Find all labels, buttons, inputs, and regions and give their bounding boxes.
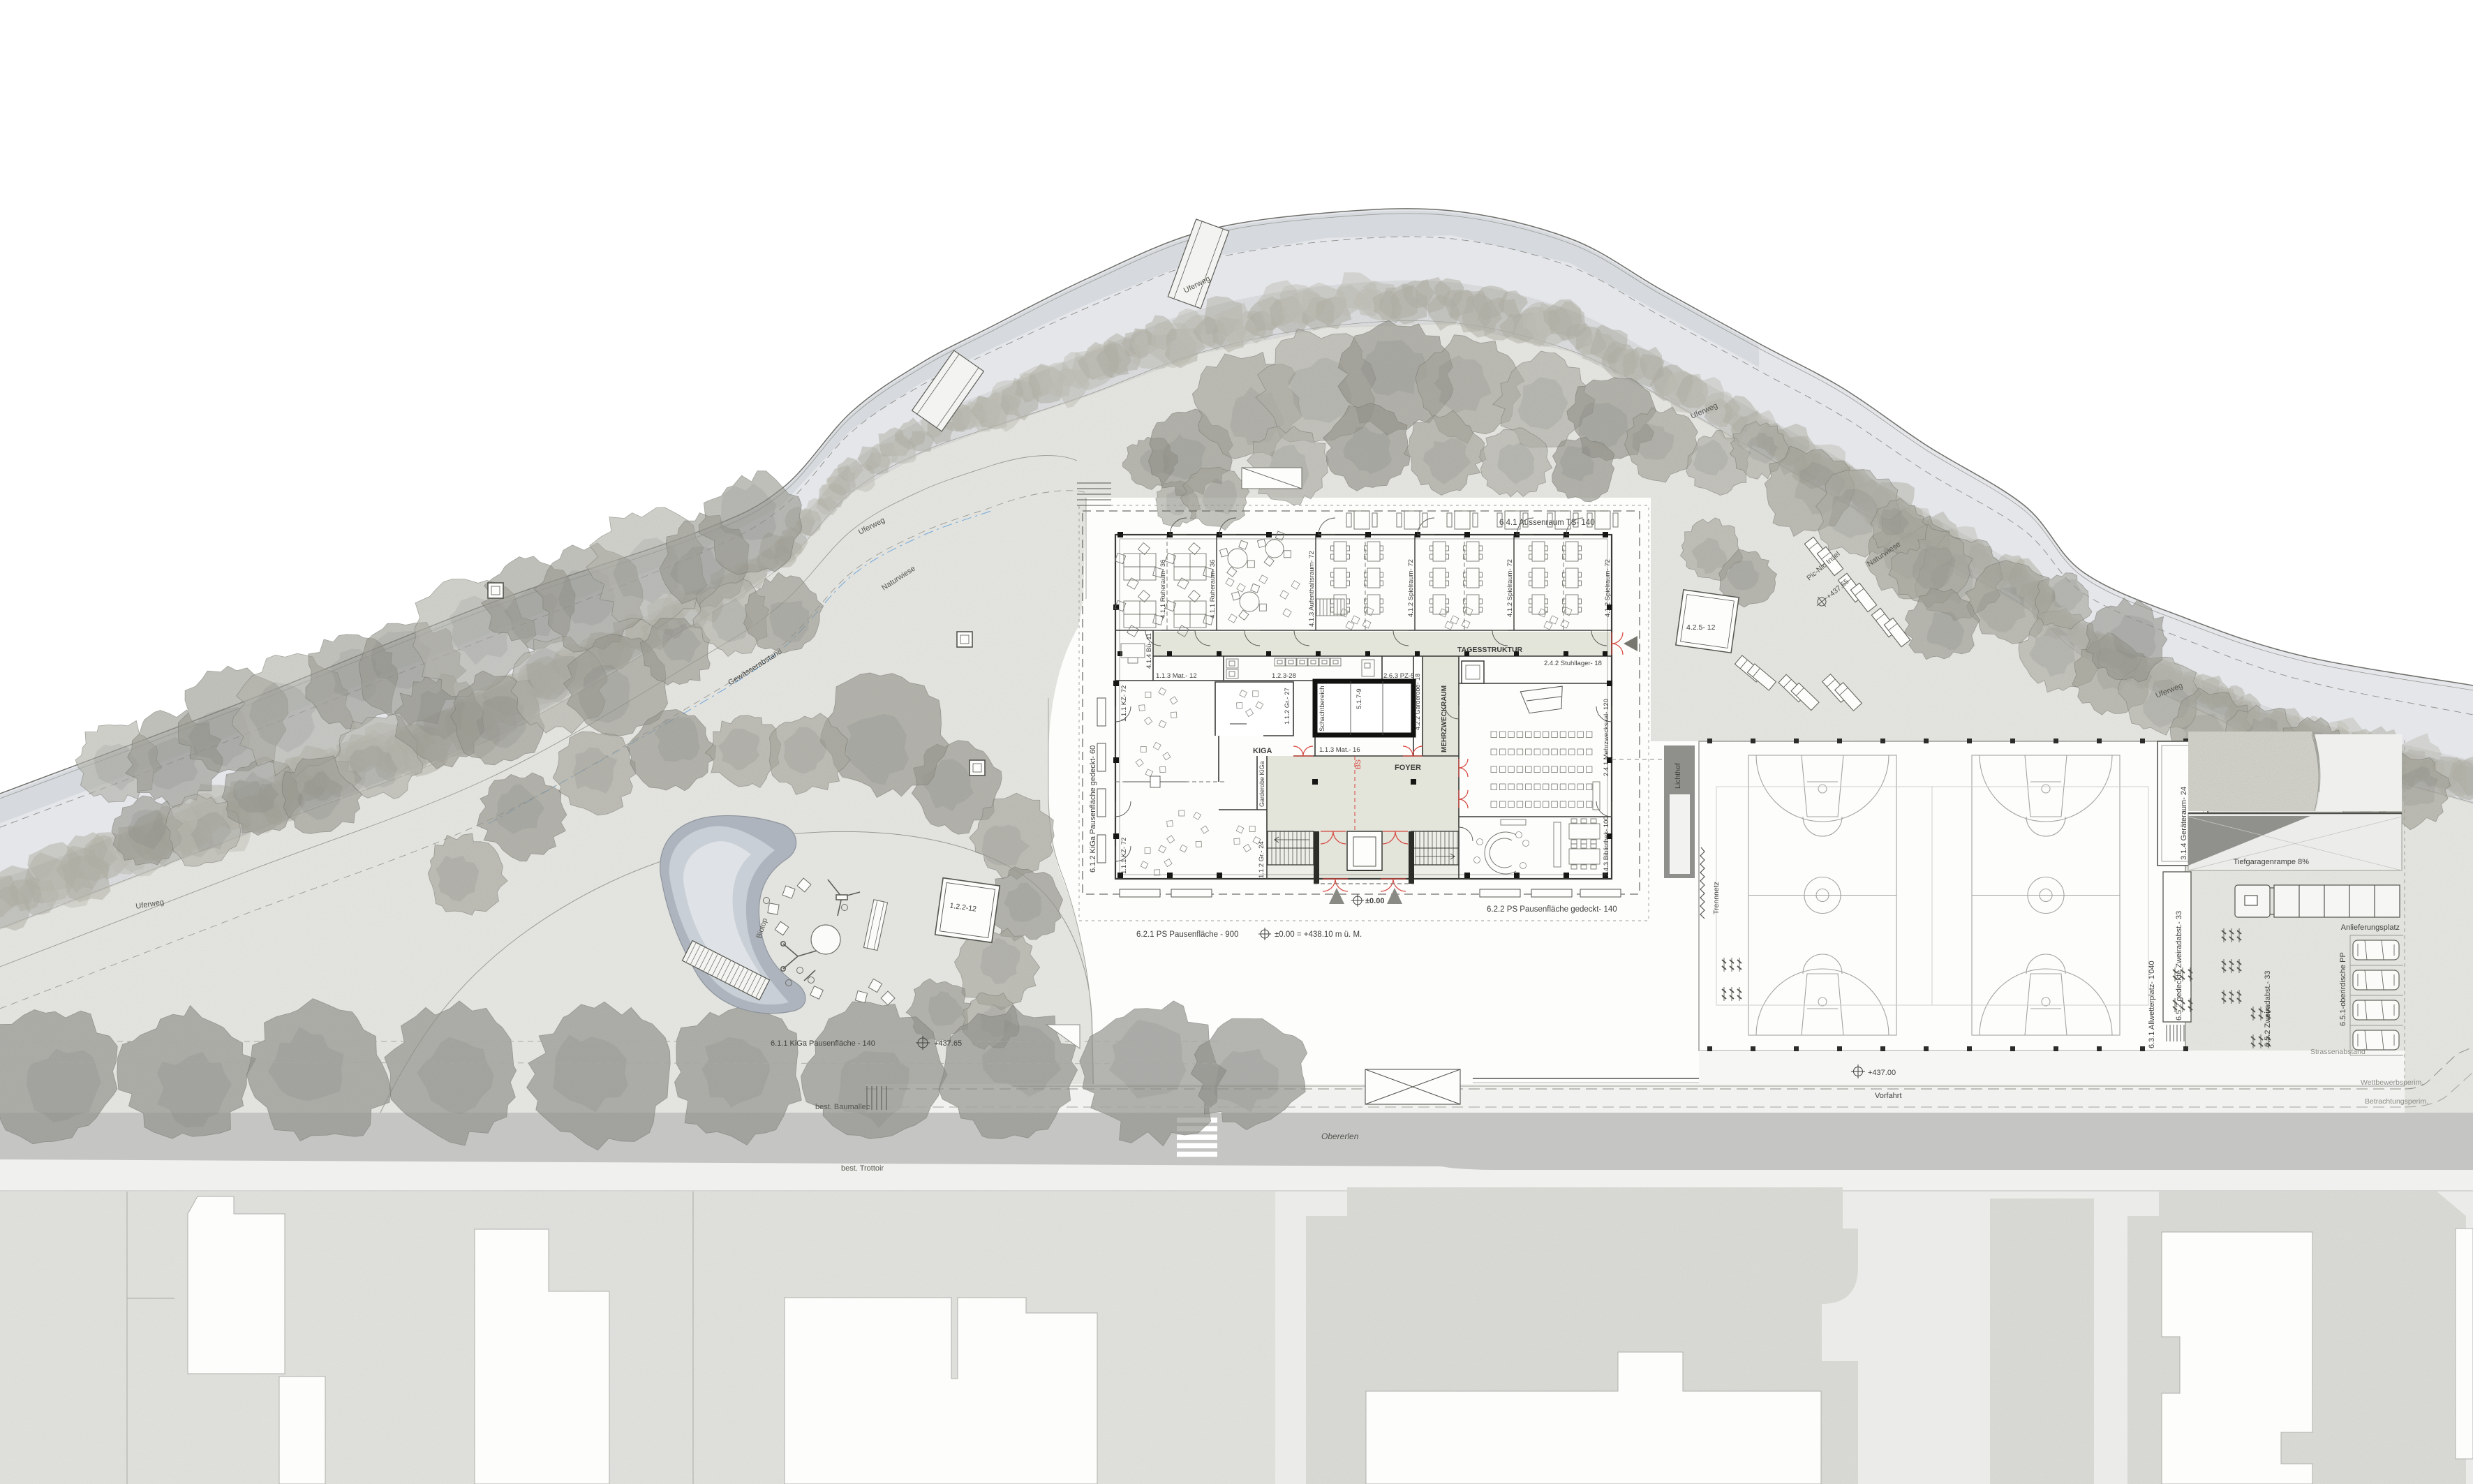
svg-text:Tiefgaragenrampe 8%: Tiefgaragenrampe 8% xyxy=(2234,858,2310,866)
svg-text:1.1.1 KZ- 72: 1.1.1 KZ- 72 xyxy=(1120,685,1128,722)
svg-text:+437.65: +437.65 xyxy=(934,1039,962,1048)
svg-text:2.6.3 PZ-5: 2.6.3 PZ-5 xyxy=(1383,672,1414,680)
svg-text:Strassenabstand: Strassenabstand xyxy=(2310,1048,2366,1056)
svg-text:6.5.1-oberirdische PP: 6.5.1-oberirdische PP xyxy=(2339,952,2347,1026)
svg-text:Schachtbereich: Schachtbereich xyxy=(1319,686,1326,732)
svg-text:4.1.3 Aufenthaltsraum- 72: 4.1.3 Aufenthaltsraum- 72 xyxy=(1308,551,1316,627)
svg-text:6.2.2 PS Pausenfläche gedeckt: 6.2.2 PS Pausenfläche gedeckt- 140 xyxy=(1487,905,1617,914)
svg-text:FOYER: FOYER xyxy=(1395,764,1421,772)
svg-text:Wettbewerbsperim.: Wettbewerbsperim. xyxy=(2361,1078,2423,1087)
svg-text:1.1.2 Gr.- 27: 1.1.2 Gr.- 27 xyxy=(1284,688,1291,725)
svg-text:±0.00: ±0.00 xyxy=(1365,897,1384,905)
svg-text:Anlieferungsplatz: Anlieferungsplatz xyxy=(2341,923,2400,932)
svg-text:4.2.2 Garderobe- 18: 4.2.2 Garderobe- 18 xyxy=(1414,674,1421,730)
svg-text:6.1.2 KiGa Pausenfläche gedeck: 6.1.2 KiGa Pausenfläche gedeckt- 60 xyxy=(1089,745,1097,873)
svg-text:best. Baumallee: best. Baumallee xyxy=(815,1103,870,1111)
svg-text:4.1.2 Spielraum- 72: 4.1.2 Spielraum- 72 xyxy=(1604,559,1612,617)
svg-text:5.1.7-9: 5.1.7-9 xyxy=(1356,688,1363,709)
svg-text:1.1.1 KZ- 72: 1.1.1 KZ- 72 xyxy=(1120,838,1128,874)
svg-text:Garderobe KiGa: Garderobe KiGa xyxy=(1258,761,1265,807)
svg-text:2.4.1 Mehrzwecksaal- 120: 2.4.1 Mehrzwecksaal- 120 xyxy=(1603,699,1610,776)
svg-text:2.4.3 Bibliothek- 100: 2.4.3 Bibliothek- 100 xyxy=(1603,816,1610,877)
svg-text:±0.00 = +438.10 m ü. M.: ±0.00 = +438.10 m ü. M. xyxy=(1275,930,1362,939)
svg-text:1.1.2 Gr.- 24: 1.1.2 Gr.- 24 xyxy=(1258,841,1265,878)
svg-text:Trennnetz: Trennnetz xyxy=(1712,882,1721,914)
svg-text:2.4.2 Stuhllager- 18: 2.4.2 Stuhllager- 18 xyxy=(1544,660,1602,667)
svg-text:Lichthof: Lichthof xyxy=(1674,763,1682,789)
svg-text:4.1.2 Spielraum- 72: 4.1.2 Spielraum- 72 xyxy=(1506,559,1514,617)
svg-text:4.1.1 Ruheraum- 36: 4.1.1 Ruheraum- 36 xyxy=(1209,560,1217,619)
svg-text:6.5.2 Zweiradabst.- 33: 6.5.2 Zweiradabst.- 33 xyxy=(2264,971,2272,1047)
svg-text:6.4.1 Aussenraum TS- 140: 6.4.1 Aussenraum TS- 140 xyxy=(1499,519,1595,527)
svg-text:TAGESSTRUKTUR: TAGESSTRUKTUR xyxy=(1457,646,1523,654)
svg-text:4.1.2 Spielraum- 72: 4.1.2 Spielraum- 72 xyxy=(1407,559,1415,617)
svg-text:Betrachtungsperim.: Betrachtungsperim. xyxy=(2365,1097,2428,1106)
svg-text:6.2.1 PS Pausenfläche - 900: 6.2.1 PS Pausenfläche - 900 xyxy=(1136,930,1238,939)
svg-text:+437.00: +437.00 xyxy=(1868,1069,1896,1077)
svg-text:KIGA: KIGA xyxy=(1253,747,1272,755)
svg-text:1.2.3-28: 1.2.3-28 xyxy=(1272,672,1296,680)
svg-text:Vorfahrt: Vorfahrt xyxy=(1875,1092,1902,1100)
svg-text:4.1.1 Ruheraum- 36: 4.1.1 Ruheraum- 36 xyxy=(1159,560,1167,619)
svg-text:1.1.3 Mat.- 16: 1.1.3 Mat.- 16 xyxy=(1319,746,1360,754)
svg-text:6.1.1 KiGa Pausenfläche - 140: 6.1.1 KiGa Pausenfläche - 140 xyxy=(771,1039,875,1048)
svg-text:6.3.1 Allwetterplatz- 1'040: 6.3.1 Allwetterplatz- 1'040 xyxy=(2148,960,2156,1048)
svg-text:4.1.4 Bü- 11: 4.1.4 Bü- 11 xyxy=(1145,633,1153,669)
svg-text:MEHRZWECKRAUM: MEHRZWECKRAUM xyxy=(1441,685,1448,752)
svg-text:3.1.4 Geräteraum- 24: 3.1.4 Geräteraum- 24 xyxy=(2180,787,2188,860)
svg-text:1.1.3 Mat.- 12: 1.1.3 Mat.- 12 xyxy=(1156,672,1197,680)
svg-text:Obererlen: Obererlen xyxy=(1321,1131,1359,1141)
svg-text:BS: BS xyxy=(1354,759,1362,769)
svg-text:6.5.2 gedeckte Zweiradabst.- 3: 6.5.2 gedeckte Zweiradabst.- 33 xyxy=(2175,911,2183,1021)
svg-text:4.2.5- 12: 4.2.5- 12 xyxy=(1686,623,1716,632)
svg-text:best. Trottoir: best. Trottoir xyxy=(841,1164,884,1173)
